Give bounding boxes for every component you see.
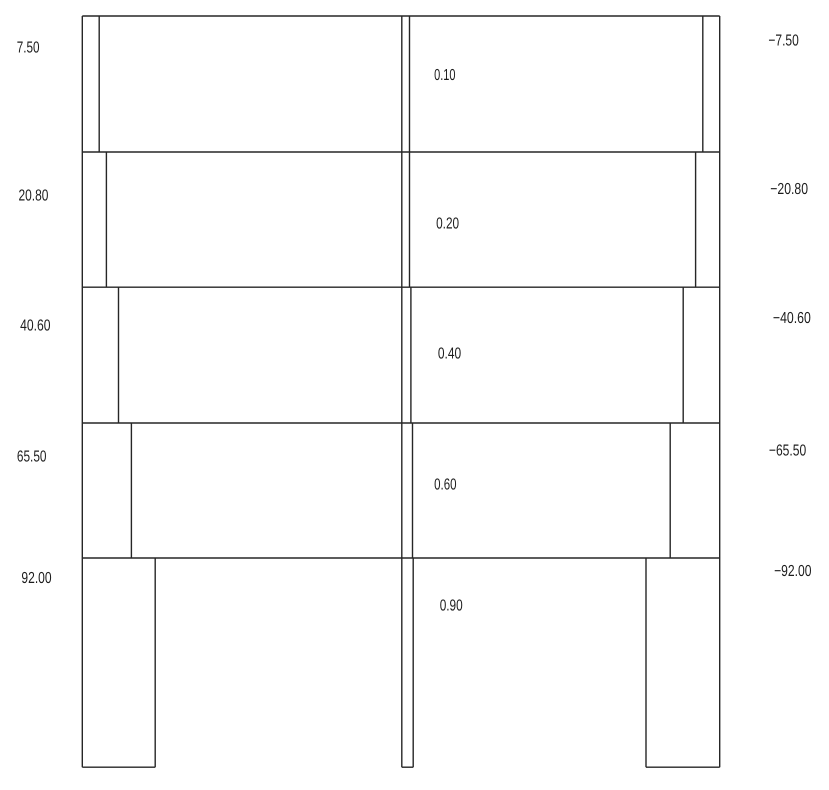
- svg-text:0.60: 0.60: [434, 476, 456, 493]
- svg-text:−40.60: −40.60: [773, 310, 811, 327]
- svg-text:0.90: 0.90: [440, 598, 463, 615]
- svg-text:65.50: 65.50: [17, 449, 47, 466]
- svg-text:−7.50: −7.50: [768, 33, 798, 50]
- svg-text:92.00: 92.00: [21, 570, 51, 587]
- svg-text:−65.50: −65.50: [769, 443, 806, 460]
- svg-text:0.10: 0.10: [434, 67, 455, 84]
- svg-text:20.80: 20.80: [19, 188, 49, 205]
- svg-text:0.20: 0.20: [436, 216, 459, 233]
- svg-text:0.40: 0.40: [438, 346, 461, 363]
- svg-text:7.50: 7.50: [17, 39, 40, 56]
- svg-text:40.60: 40.60: [20, 318, 50, 335]
- svg-text:−92.00: −92.00: [774, 563, 811, 580]
- svg-text:−20.80: −20.80: [770, 181, 808, 198]
